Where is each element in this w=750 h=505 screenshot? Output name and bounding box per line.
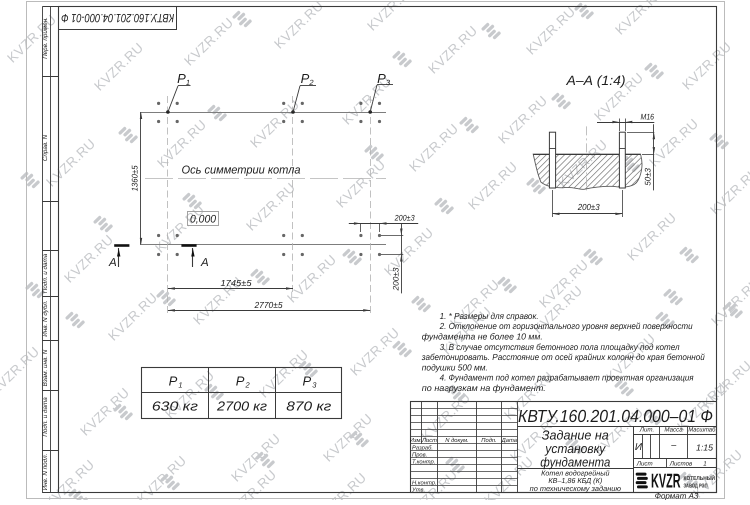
- svg-text:Инв. N подл.: Инв. N подл.: [42, 454, 49, 491]
- svg-text:1. * Размеры для справок.: 1. * Размеры для справок.: [440, 311, 539, 321]
- svg-text:1745±5: 1745±5: [221, 278, 252, 288]
- svg-text:Формат А3: Формат А3: [655, 492, 699, 501]
- svg-text:50±3: 50±3: [644, 168, 653, 186]
- svg-text:1360±5: 1360±5: [130, 165, 140, 191]
- svg-text:забетонировать. Расстояние от: забетонировать. Расстояние от осей крайн…: [421, 352, 705, 362]
- svg-text:Разраб.: Разраб.: [412, 444, 433, 451]
- svg-text:А: А: [200, 257, 209, 269]
- svg-text:1: 1: [178, 381, 182, 390]
- svg-text:2. Отклонение от горизонтально: 2. Отклонение от горизонтального уровня …: [439, 321, 693, 331]
- svg-text:2700 кг: 2700 кг: [216, 399, 268, 414]
- svg-text:Взам. инв. N: Взам. инв. N: [42, 349, 49, 386]
- svg-text:М16: М16: [641, 113, 655, 122]
- svg-text:ЗАВОД РЭП: ЗАВОД РЭП: [684, 483, 708, 489]
- svg-text:фундамента: фундамента: [540, 455, 610, 470]
- svg-text:3. В случае отсутствия бетонно: 3. В случае отсутствия бетонного пола пл…: [440, 342, 680, 352]
- svg-text:Изм.: Изм.: [410, 438, 422, 444]
- svg-text:Подп. и дата: Подп. и дата: [42, 253, 49, 293]
- svg-text:P: P: [177, 71, 186, 86]
- svg-text:Масштаб: Масштаб: [688, 427, 715, 434]
- svg-text:P: P: [377, 71, 386, 86]
- svg-text:–: –: [670, 440, 677, 450]
- svg-text:Ось симметрии котла: Ось симметрии котла: [182, 165, 301, 177]
- svg-text:200±3: 200±3: [577, 202, 600, 212]
- svg-text:KVZR: KVZR: [651, 471, 681, 493]
- svg-text:P: P: [236, 373, 245, 388]
- svg-text:по нагрузкам на фундамент.: по нагрузкам на фундамент.: [422, 383, 546, 393]
- svg-text:Инв. N дубл.: Инв. N дубл.: [42, 300, 49, 336]
- svg-text:КВТУ.160.201.04.000–01 Ф: КВТУ.160.201.04.000–01 Ф: [518, 406, 713, 426]
- svg-text:1: 1: [703, 461, 706, 468]
- svg-text:0,000: 0,000: [190, 213, 217, 225]
- svg-text:P: P: [169, 373, 178, 388]
- svg-text:630 кг: 630 кг: [152, 399, 199, 414]
- svg-text:Лист: Лист: [636, 461, 653, 468]
- svg-text:Листов: Листов: [669, 461, 693, 468]
- svg-text:А–А (1:4): А–А (1:4): [565, 73, 625, 88]
- svg-text:P: P: [302, 373, 311, 388]
- svg-text:Справ. N: Справ. N: [42, 134, 49, 161]
- svg-text:А: А: [108, 257, 117, 269]
- svg-text:И: И: [635, 442, 643, 453]
- svg-text:870 кг: 870 кг: [286, 399, 332, 414]
- svg-text:КВТУ.160.201.04.000-01 Ф: КВТУ.160.201.04.000-01 Ф: [61, 11, 174, 25]
- svg-text:фундамента не более 10 мм.: фундамента не более 10 мм.: [422, 332, 543, 342]
- svg-text:Подп.: Подп.: [481, 437, 496, 444]
- svg-text:Лист: Лист: [421, 438, 437, 444]
- svg-text:4. Фундамент под котел разраба: 4. Фундамент под котел разрабатывает про…: [440, 373, 694, 383]
- svg-text:Утв.: Утв.: [411, 487, 425, 493]
- svg-text:2770±5: 2770±5: [254, 300, 283, 310]
- svg-text:Подп. и дата: Подп. и дата: [42, 397, 49, 437]
- svg-text:КОТЕЛЬНЫЙ: КОТЕЛЬНЫЙ: [684, 474, 716, 482]
- svg-text:Пров.: Пров.: [412, 452, 427, 458]
- svg-text:1:15: 1:15: [696, 442, 713, 452]
- svg-text:Перв. примен.: Перв. примен.: [42, 17, 49, 59]
- svg-text:N докум.: N докум.: [445, 437, 468, 444]
- svg-text:по техническому заданию: по техническому заданию: [530, 484, 622, 493]
- svg-text:Лит.: Лит.: [639, 427, 655, 434]
- svg-text:200±3: 200±3: [394, 214, 415, 223]
- svg-text:подушки 500 мм.: подушки 500 мм.: [422, 362, 488, 372]
- svg-text:Масса: Масса: [664, 427, 683, 434]
- svg-text:P: P: [301, 71, 310, 86]
- svg-text:2: 2: [244, 381, 250, 390]
- svg-text:Дата: Дата: [501, 438, 518, 444]
- svg-text:200±3: 200±3: [392, 267, 401, 292]
- svg-text:Т.контр.: Т.контр.: [412, 459, 435, 465]
- svg-text:Н.контр.: Н.контр.: [412, 480, 437, 486]
